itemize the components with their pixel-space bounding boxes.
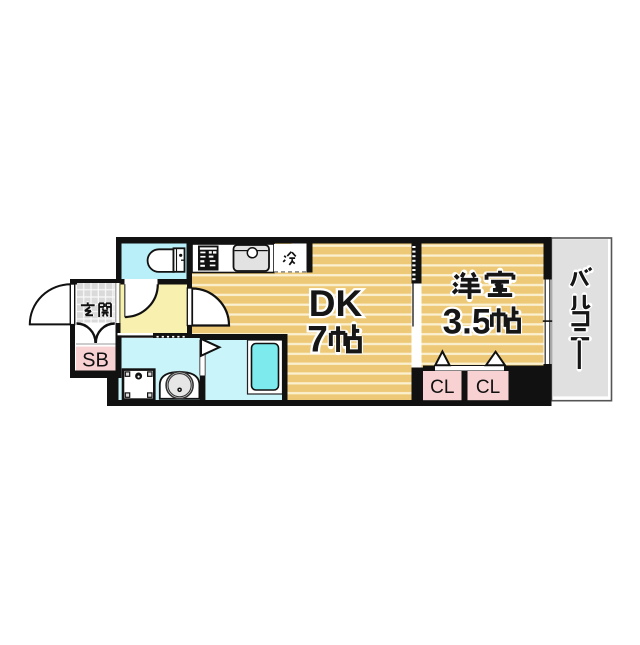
svg-text:CL: CL [430, 377, 454, 398]
svg-text:7: 7 [307, 318, 328, 359]
svg-text:3.5: 3.5 [443, 303, 492, 342]
svg-text:SB: SB [82, 349, 109, 371]
svg-text:CL: CL [476, 377, 500, 398]
